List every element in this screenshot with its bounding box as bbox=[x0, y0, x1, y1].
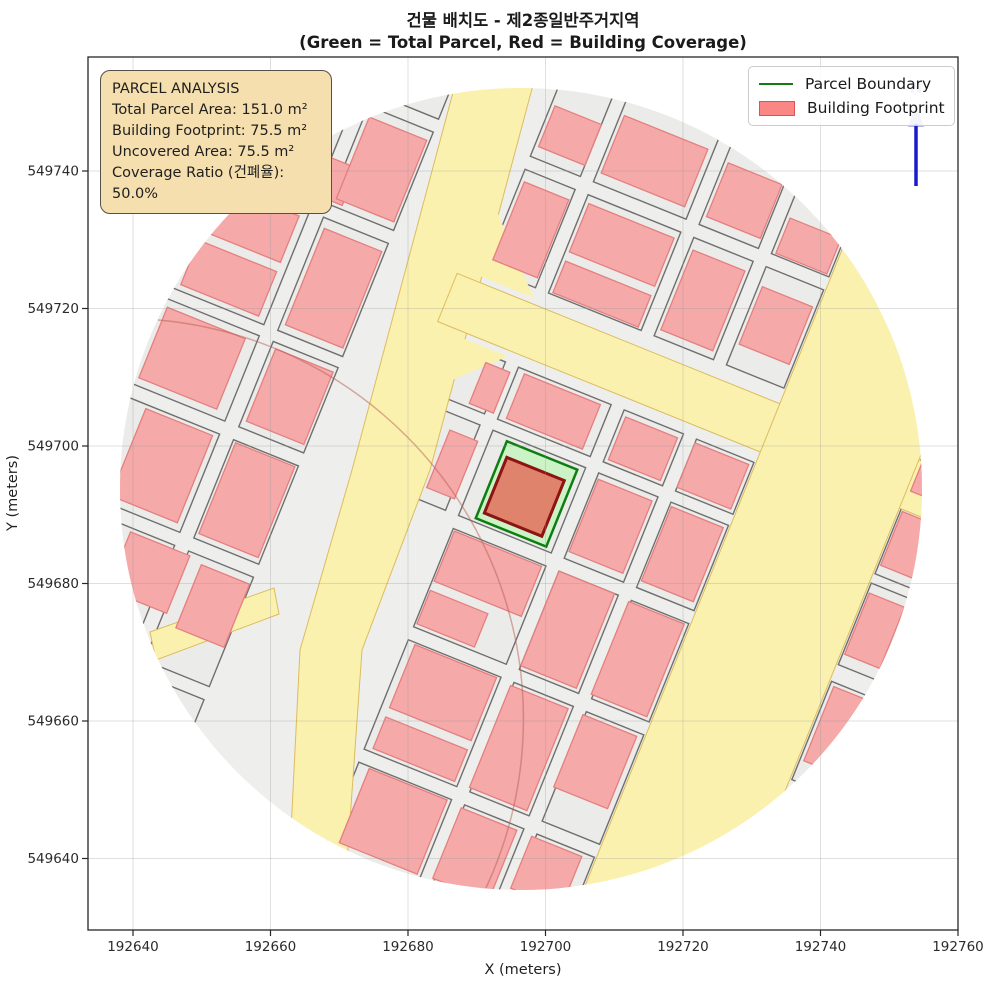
building-footprint-swatch bbox=[759, 101, 795, 116]
x-tick-label: 192660 bbox=[245, 939, 297, 955]
parcel-block bbox=[758, 793, 825, 879]
legend-item-building-footprint: Building Footprint bbox=[749, 99, 954, 117]
x-tick-label: 192760 bbox=[932, 939, 984, 955]
x-tick-label: 192740 bbox=[795, 939, 847, 955]
x-axis-label: X (meters) bbox=[484, 962, 561, 978]
chart-title: 건물 배치도 - 제2종일반주거지역 bbox=[407, 11, 640, 30]
x-tick-label: 192700 bbox=[520, 939, 572, 955]
y-axis-label: Y (meters) bbox=[5, 455, 21, 532]
parcel-analysis-box: PARCEL ANALYSIS Total Parcel Area: 151.0… bbox=[100, 70, 332, 214]
building-footprint bbox=[764, 796, 817, 861]
figure: 건물 배치도 - 제2종일반주거지역 (Green = Total Parcel… bbox=[0, 0, 988, 990]
legend: Parcel Boundary Building Footprint bbox=[748, 66, 955, 126]
y-tick-label: 549720 bbox=[27, 301, 79, 317]
legend-label: Building Footprint bbox=[807, 99, 945, 117]
parcel-analysis-line: Uncovered Area: 75.5 m² bbox=[112, 142, 320, 163]
parcel-analysis-line: Total Parcel Area: 151.0 m² bbox=[112, 100, 320, 121]
parcel-analysis-line: Building Footprint: 75.5 m² bbox=[112, 121, 320, 142]
parcel-boundary-line-swatch bbox=[759, 83, 793, 85]
x-tick-label: 192640 bbox=[107, 939, 159, 955]
y-tick-label: 549640 bbox=[27, 851, 79, 867]
y-tick-label: 549660 bbox=[27, 714, 79, 730]
y-tick-label: 549740 bbox=[27, 164, 79, 180]
y-tick-label: 549680 bbox=[27, 576, 79, 592]
parcel-analysis-line: Coverage Ratio (건폐율): 50.0% bbox=[112, 163, 320, 205]
legend-item-parcel-boundary: Parcel Boundary bbox=[749, 75, 954, 93]
y-tick-label: 549700 bbox=[27, 439, 79, 455]
x-tick-label: 192680 bbox=[382, 939, 434, 955]
x-tick-label: 192720 bbox=[657, 939, 709, 955]
chart-subtitle: (Green = Total Parcel, Red = Building Co… bbox=[299, 33, 747, 52]
parcel-analysis-title: PARCEL ANALYSIS bbox=[112, 79, 320, 100]
legend-label: Parcel Boundary bbox=[805, 75, 931, 93]
